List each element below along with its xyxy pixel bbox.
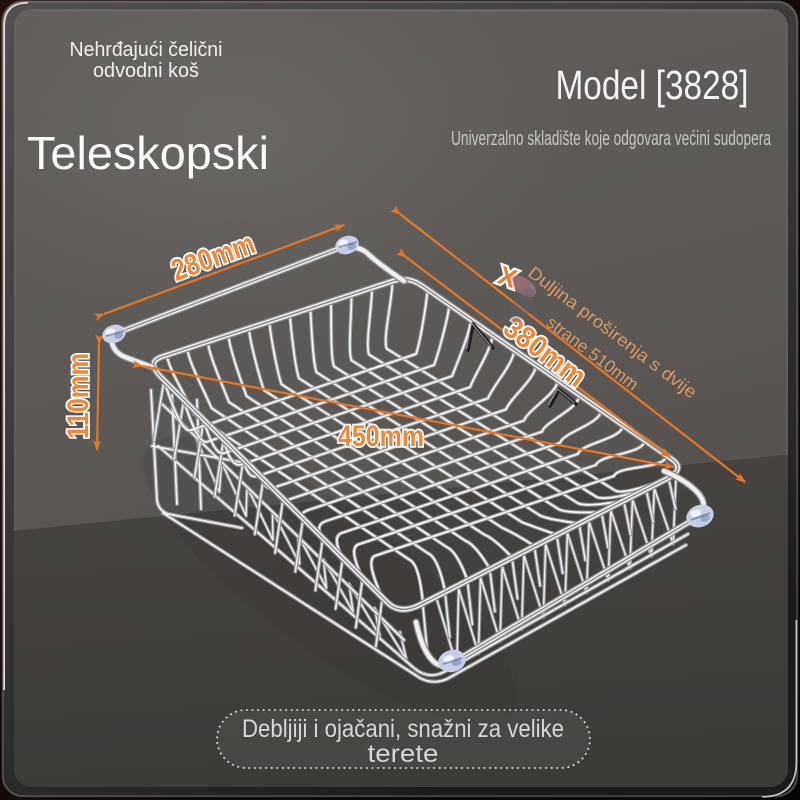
svg-text:odvodni koš: odvodni koš (93, 60, 199, 82)
svg-text:Univerzalno skladište koje odg: Univerzalno skladište koje odgovara veći… (451, 128, 772, 150)
svg-text:Debljiji i ojačani, snažni za: Debljiji i ojačani, snažni za velike (242, 715, 564, 743)
svg-text:Teleskopski: Teleskopski (27, 127, 269, 179)
svg-text:terete: terete (368, 740, 439, 768)
svg-text:Nehrđajući čelični: Nehrđajući čelični (70, 39, 223, 61)
svg-text:450mm: 450mm (338, 420, 424, 453)
svg-text:Model [3828]: Model [3828] (556, 62, 749, 108)
svg-text:110mm: 110mm (62, 353, 95, 439)
